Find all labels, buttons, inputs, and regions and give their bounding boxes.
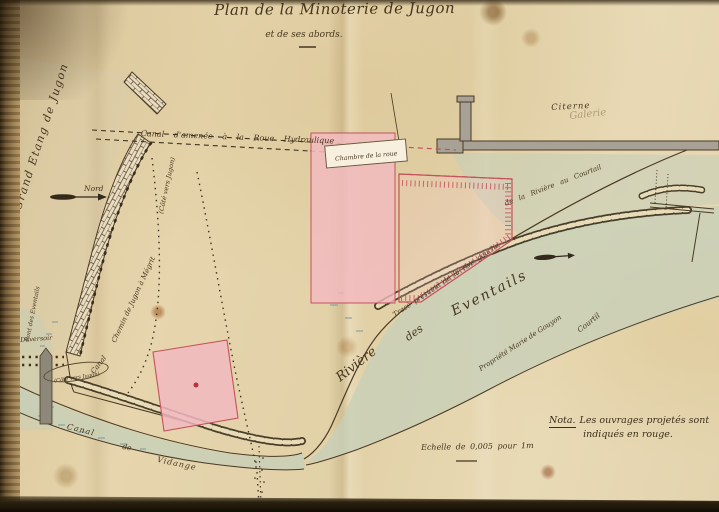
north-label: Nord xyxy=(84,185,103,193)
label-chambre-roue: Chambre de la roue xyxy=(335,150,398,162)
red-center-mark xyxy=(194,383,199,388)
nota-heading: Nota. xyxy=(549,415,576,428)
nota-line1: Les ouvrages projetés sont xyxy=(580,415,710,426)
archival-plan-photo: Plan de la Minoterie de Jugon et de ses … xyxy=(0,0,719,512)
nota-line2: indiqués en rouge. xyxy=(549,429,707,440)
corner-shadow xyxy=(0,0,140,100)
page-subtitle: et de ses abords. xyxy=(258,31,350,40)
top-edge-shadow xyxy=(0,0,719,6)
nota-block: Nota.Les ouvrages projetés sont indiqués… xyxy=(549,415,707,440)
label-canal-de-vidange-2: de xyxy=(122,443,132,452)
